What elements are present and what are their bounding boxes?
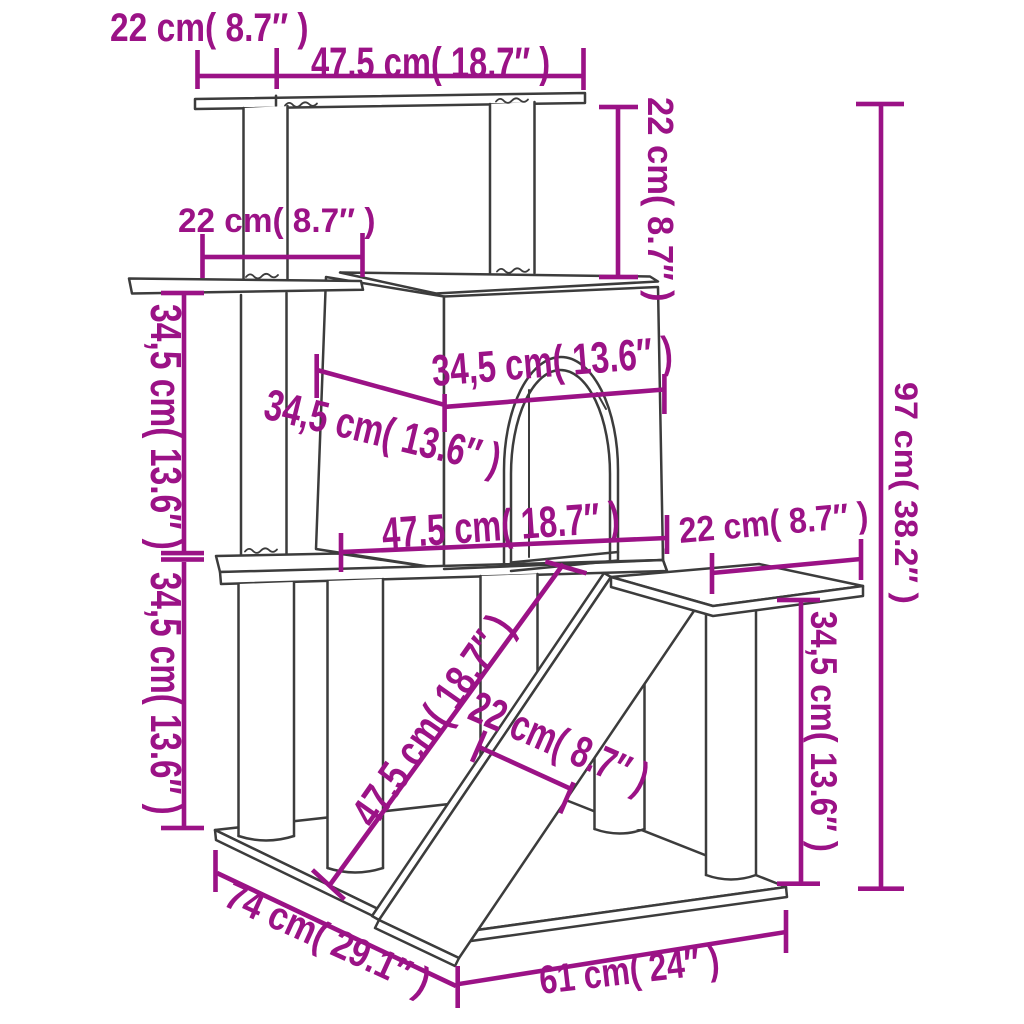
svg-text:22 cm( 8.7″ ): 22 cm( 8.7″ ) [110,5,309,49]
svg-text:97 cm( 38.2″ ): 97 cm( 38.2″ ) [887,382,923,604]
svg-text:47.5 cm( 18.7″ ): 47.5 cm( 18.7″ ) [311,39,550,87]
svg-text:34,5 cm( 13.6″ ): 34,5 cm( 13.6″ ) [141,304,189,550]
svg-text:34,5 cm( 13.6″ ): 34,5 cm( 13.6″ ) [803,611,844,852]
svg-text:22 cm( 8.7″ ): 22 cm( 8.7″ ) [640,97,680,302]
svg-text:22 cm( 8.7″ ): 22 cm( 8.7″ ) [178,203,375,240]
svg-text:34,5 cm( 13.6″ ): 34,5 cm( 13.6″ ) [141,572,190,815]
